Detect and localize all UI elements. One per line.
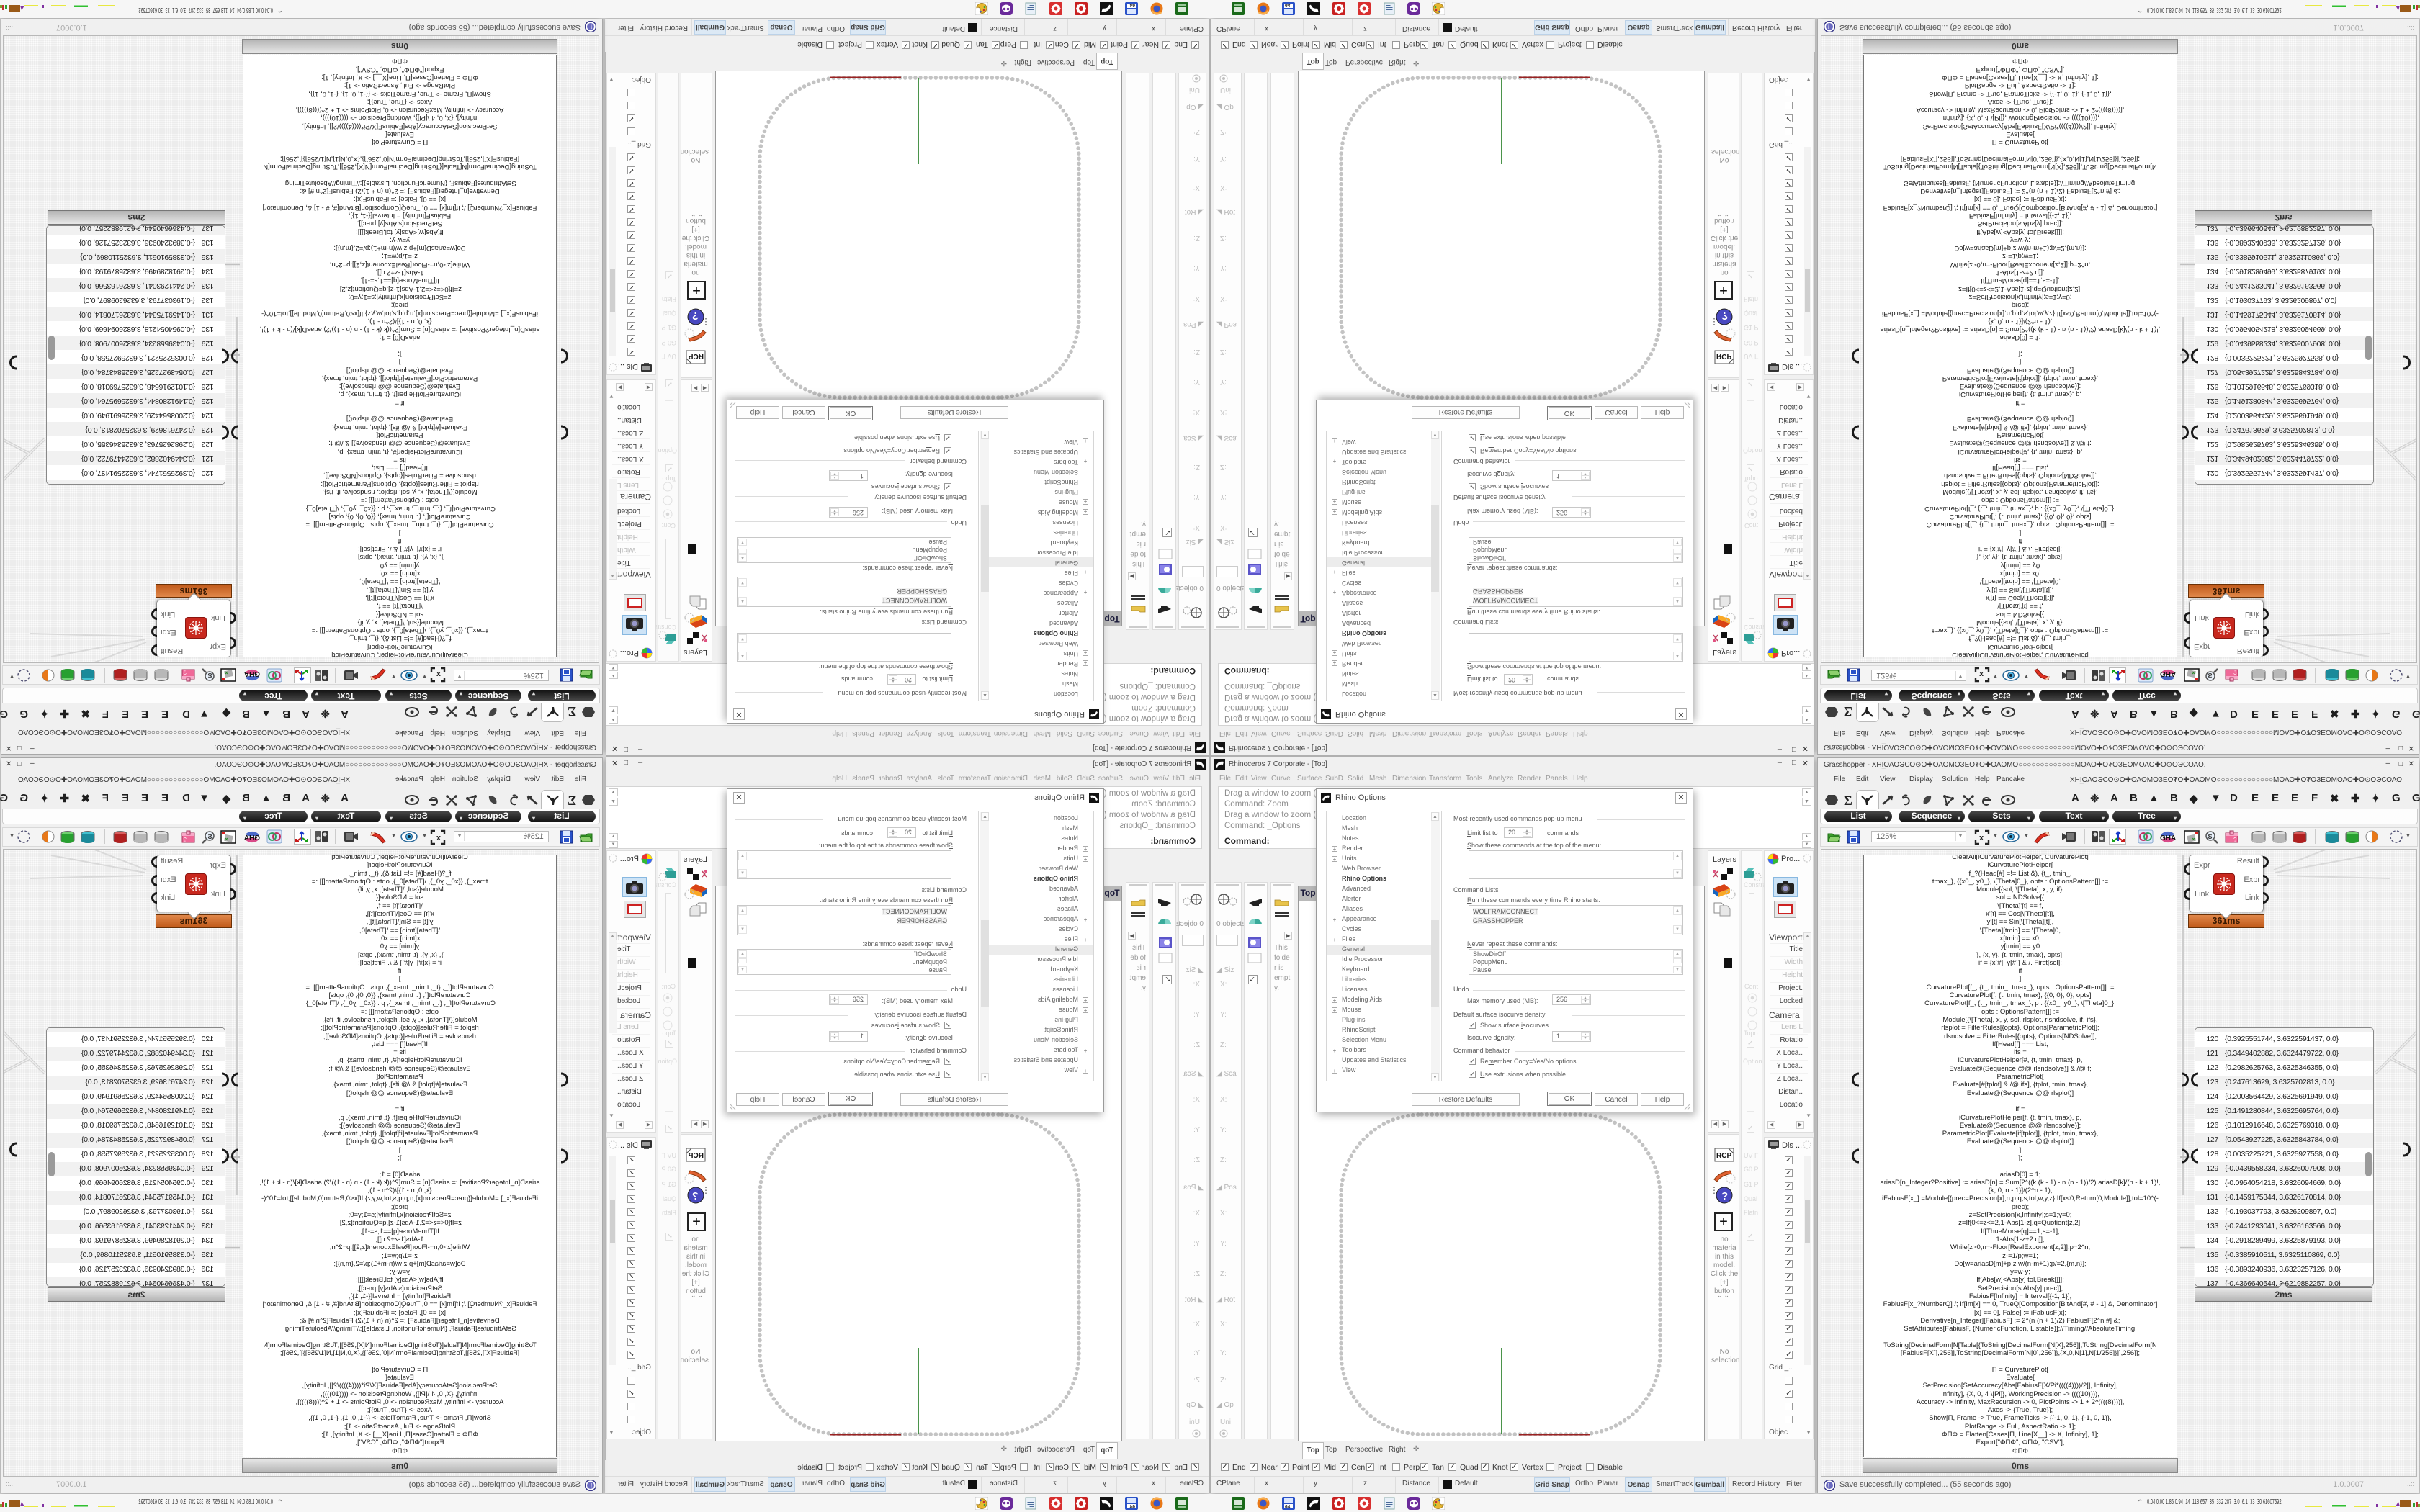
svg-text:GHA: GHA (2160, 834, 2176, 842)
svg-text:RCP: RCP (1716, 352, 1731, 360)
svg-text:Σ: Σ (1844, 705, 1852, 719)
svg-text:x: x (436, 670, 441, 678)
svg-text:S: S (207, 672, 212, 679)
svg-text:Σ: Σ (1844, 793, 1852, 807)
svg-text:RCP: RCP (1716, 1152, 1731, 1160)
svg-text:?: ? (1721, 1190, 1728, 1202)
svg-text:x: x (1979, 670, 1984, 678)
svg-text:?: ? (692, 1190, 699, 1202)
svg-text:S: S (2208, 833, 2213, 840)
svg-text:S: S (2208, 672, 2213, 679)
svg-text:S: S (207, 833, 212, 840)
svg-text:RCP: RCP (689, 1152, 704, 1160)
svg-text:?: ? (2233, 669, 2237, 675)
svg-text:x: x (436, 834, 441, 842)
svg-text:x: x (1979, 834, 1984, 842)
svg-text:GHA: GHA (244, 670, 260, 678)
svg-text:Σ: Σ (568, 705, 576, 719)
svg-text:64: 64 (1285, 1505, 1291, 1510)
svg-text:GHA: GHA (244, 834, 260, 842)
svg-text:?: ? (692, 310, 699, 322)
svg-text:!: ! (590, 1482, 592, 1490)
svg-text:?: ? (2233, 837, 2237, 843)
svg-text:?: ? (183, 837, 187, 843)
svg-text:!: ! (1828, 1482, 1830, 1490)
svg-text:?: ? (183, 669, 187, 675)
svg-text:64: 64 (1285, 3, 1291, 8)
svg-text:?: ? (1721, 310, 1728, 322)
svg-text:GHA: GHA (2160, 670, 2176, 678)
svg-text:Σ: Σ (568, 793, 576, 807)
svg-text:!: ! (1828, 22, 1830, 30)
svg-text:!: ! (590, 22, 592, 30)
svg-text:64: 64 (1129, 3, 1135, 8)
svg-text:RCP: RCP (689, 352, 704, 360)
svg-text:64: 64 (1129, 1505, 1135, 1510)
